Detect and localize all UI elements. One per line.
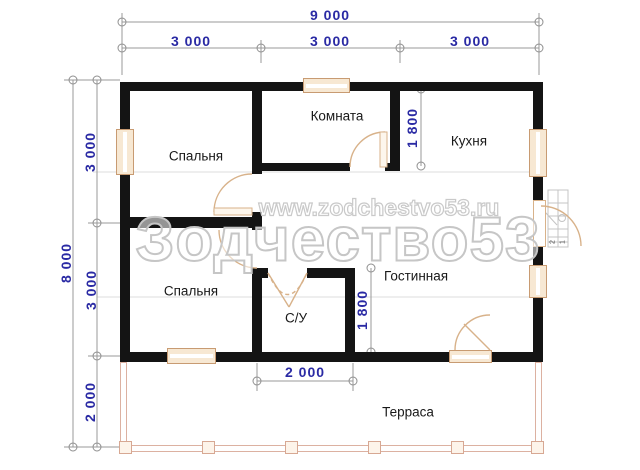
door-bathroom-fold [268, 273, 307, 307]
step-number-1: 1 [560, 240, 567, 244]
room-label-inner-room: Комната [311, 109, 364, 124]
dim-left-segment-3: 2 000 [82, 382, 98, 422]
room-label-bathroom: С/У [285, 311, 307, 326]
room-label-terrace: Терраса [382, 405, 434, 420]
dim-total-height: 8 000 [58, 243, 74, 283]
watermark-brand: Зодчество53 [136, 205, 541, 276]
dim-kitchen-depth: 1 800 [404, 108, 420, 148]
dim-total-width: 9 000 [310, 7, 350, 23]
room-label-kitchen: Кухня [451, 134, 487, 149]
dim-left-segment-2: 3 000 [83, 270, 99, 310]
room-label-living-room: Гостинная [384, 269, 448, 284]
door-innerroom-leaf [380, 132, 387, 167]
floor-plan: 9 000 3 000 3 000 3 000 8 000 3 000 3 00… [0, 0, 640, 470]
dim-left-segment-1: 3 000 [82, 132, 98, 172]
dim-bathroom-width: 2 000 [285, 364, 325, 380]
dim-top-segment-2: 3 000 [310, 33, 350, 49]
dim-top-segment-3: 3 000 [450, 33, 490, 49]
door-terrace-leaf [464, 324, 490, 350]
step-number-2: 2 [550, 240, 557, 244]
dim-top-segment-1: 3 000 [171, 33, 211, 49]
dim-living-depth: 1 800 [354, 290, 370, 330]
room-label-bedroom2: Спальня [164, 284, 218, 299]
room-label-bedroom1: Спальня [169, 149, 223, 164]
